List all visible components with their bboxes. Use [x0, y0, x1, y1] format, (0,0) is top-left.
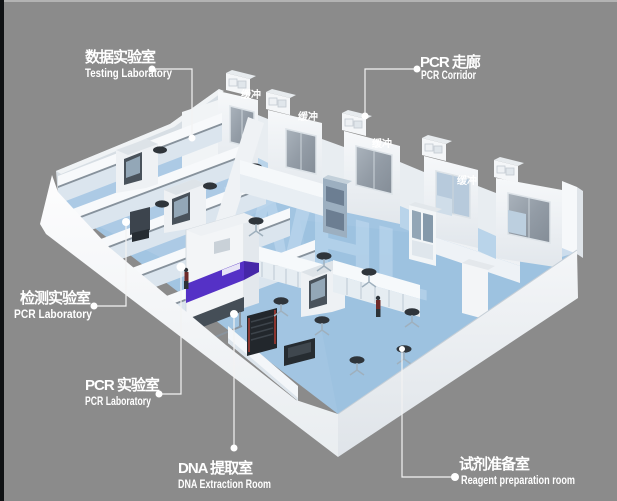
svg-text:DNA Extraction Room: DNA Extraction Room: [178, 477, 271, 491]
svg-text:Reagent preparation room: Reagent preparation room: [461, 473, 575, 487]
svg-text:Testing Laboratory: Testing Laboratory: [85, 66, 172, 80]
svg-text:PCR Laboratory: PCR Laboratory: [85, 394, 151, 408]
svg-text:缓冲: 缓冲: [297, 110, 318, 123]
svg-text:缓冲: 缓冲: [371, 137, 392, 150]
svg-text:DNA 提取室: DNA 提取室: [178, 459, 253, 477]
svg-text:PCR Corridor: PCR Corridor: [421, 68, 476, 82]
svg-text:PCR Laboratory: PCR Laboratory: [14, 307, 92, 321]
svg-text:缓冲: 缓冲: [456, 174, 477, 187]
svg-text:试剂准备室: 试剂准备室: [459, 455, 530, 473]
svg-text:缓冲: 缓冲: [240, 88, 261, 101]
svg-text:PCR 实验室: PCR 实验室: [85, 376, 160, 394]
svg-text:检测实验室: 检测实验室: [20, 289, 91, 307]
svg-text:数据实验室: 数据实验室: [85, 48, 156, 66]
